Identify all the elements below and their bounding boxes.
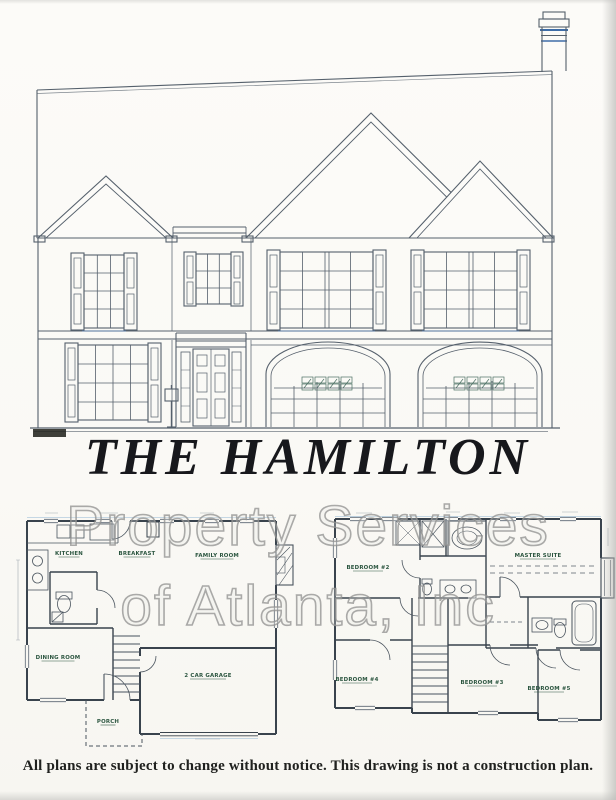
room-label-dining-room: DINING ROOM	[36, 655, 81, 661]
garage-door-left	[266, 342, 390, 427]
master-ceiling-dashes	[490, 566, 597, 622]
floor-trim-band	[38, 331, 552, 345]
second-floor-plan: BEDROOM #2 MASTER SUITE BEDROOM #4 BEDRO…	[333, 512, 614, 722]
left-gable	[34, 176, 177, 242]
first-floor-stairs	[113, 636, 140, 692]
first-floor-windows	[25, 519, 277, 701]
scan-edge-bottom	[0, 791, 616, 800]
room-label-bedroom-5: BEDROOM #5	[527, 686, 570, 692]
garage-door-right	[418, 342, 542, 427]
lower-window-left	[65, 343, 161, 422]
second-floor-doors	[370, 560, 580, 670]
room-label-garage: 2 CAR GARAGE	[184, 673, 231, 679]
scanned-plan-sheet: THE HAMILTON	[0, 0, 616, 800]
room-label-porch: PORCH	[97, 719, 119, 725]
room-label-bedroom-3: BEDROOM #3	[460, 680, 503, 686]
first-floor-plan: KITCHEN BREAKFAST FAMILY ROOM DINING ROO…	[16, 513, 293, 746]
first-floor-doors	[97, 521, 156, 700]
second-floor-fixtures	[396, 521, 614, 645]
front-door	[176, 333, 246, 427]
room-label-master-suite: MASTER SUITE	[515, 553, 562, 559]
scan-edge-top	[0, 0, 616, 4]
disclaimer-text: All plans are subject to change without …	[0, 758, 616, 775]
first-floor-room-labels: KITCHEN BREAKFAST FAMILY ROOM DINING ROO…	[36, 551, 239, 725]
plan-title: THE HAMILTON	[0, 431, 616, 486]
center-section-eave	[173, 227, 246, 238]
room-label-bedroom-2: BEDROOM #2	[346, 565, 389, 571]
room-label-kitchen: KITCHEN	[55, 551, 83, 557]
upper-window-right	[411, 250, 530, 331]
upper-window-left	[71, 253, 137, 331]
front-elevation-drawing	[0, 0, 616, 450]
scan-edge-right	[602, 0, 616, 800]
wall-lines	[38, 238, 552, 428]
room-label-family-room: FAMILY ROOM	[195, 553, 239, 559]
chimney	[539, 12, 569, 72]
upper-window-center	[184, 252, 243, 306]
second-floor-room-labels: BEDROOM #2 MASTER SUITE BEDROOM #4 BEDRO…	[335, 553, 570, 692]
second-floor-stairs	[412, 646, 448, 702]
upper-window-mid-right	[267, 250, 386, 331]
room-label-breakfast: BREAKFAST	[119, 551, 156, 557]
dimension-ticks-first	[16, 513, 220, 739]
floor-plans-drawing: KITCHEN BREAKFAST FAMILY ROOM DINING ROO…	[0, 492, 616, 764]
room-label-bedroom-4: BEDROOM #4	[335, 677, 378, 683]
